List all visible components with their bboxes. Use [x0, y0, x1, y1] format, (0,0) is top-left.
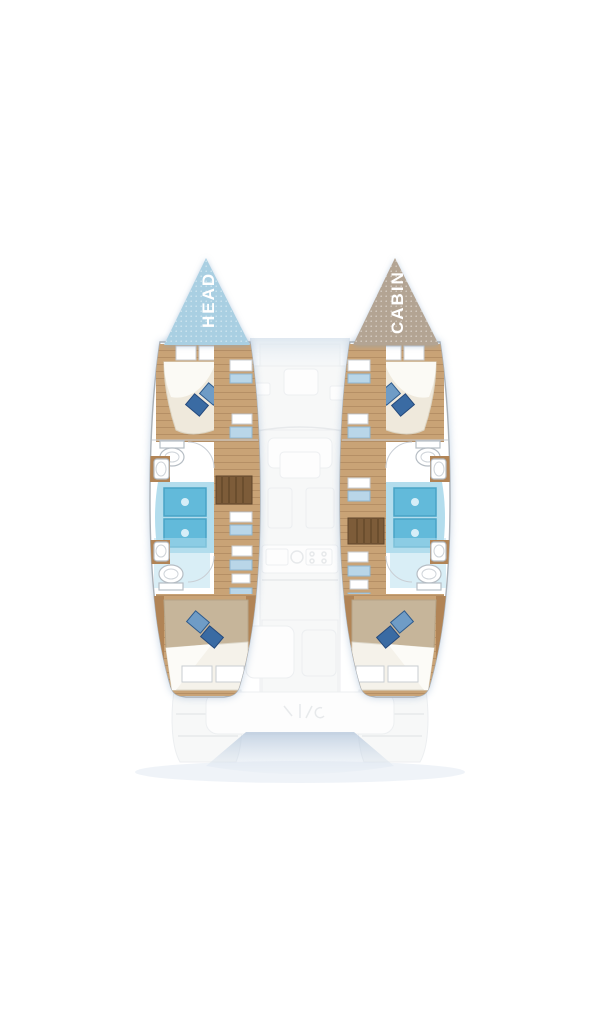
shower-drain — [181, 498, 189, 506]
cabinet-drawer — [348, 414, 368, 424]
head-label: HEAD — [199, 272, 218, 328]
bed-foot-drawer — [182, 666, 212, 682]
shower-drain — [411, 529, 419, 537]
shower-drain — [181, 529, 189, 537]
forward-cockpit-seat — [284, 369, 318, 395]
toilet-tank — [159, 583, 183, 590]
cabin-label: CABIN — [388, 270, 407, 334]
cabinet-drawer-blue — [230, 374, 252, 383]
cabinet-drawer — [348, 360, 370, 371]
toilet-bowl — [417, 565, 441, 583]
port-bow: HEAD — [164, 258, 250, 345]
stern-water-wash — [135, 761, 465, 783]
toilet-tank — [416, 441, 440, 448]
port-hull-interior — [150, 344, 260, 696]
boat-plan-svg: HEAD CABIN — [0, 0, 600, 1024]
toilet-tank — [160, 441, 184, 448]
cockpit-bench — [302, 630, 336, 676]
bed-foot-drawer — [388, 666, 418, 682]
port-companionway-steps — [216, 476, 252, 504]
cabinet-drawer-blue — [348, 566, 370, 576]
galley-sink — [266, 549, 288, 565]
cabinet-drawer-blue — [348, 427, 370, 438]
cabinet-drawer — [230, 512, 252, 522]
cabinet-drawer — [232, 546, 252, 556]
toilet-bowl — [159, 565, 183, 583]
cabinet-drawer — [348, 478, 370, 488]
starboard-companionway-steps — [348, 518, 384, 544]
starboard-bow: CABIN — [353, 258, 439, 345]
shower-drain — [411, 498, 419, 506]
cabinet-drawer — [230, 360, 252, 371]
cabinet-drawer — [350, 580, 368, 589]
cabinet-drawer-blue — [348, 374, 370, 383]
cabinet-drawer — [232, 574, 250, 583]
cockpit-table — [246, 626, 294, 678]
nav-station — [268, 488, 292, 528]
bed-foot-drawer — [356, 666, 384, 682]
cabinet-drawer — [348, 552, 368, 562]
catamaran-floorplan-page: HEAD CABIN — [0, 0, 600, 1024]
port-hull — [150, 342, 260, 697]
cabinet-drawer-blue — [230, 427, 252, 438]
saloon-cabinet — [306, 488, 334, 528]
cabinet-drawer-blue — [230, 560, 252, 570]
saloon-table — [280, 452, 320, 478]
cabinet-drawer-blue — [230, 525, 252, 535]
cabinet-drawer — [232, 414, 252, 424]
starboard-hull — [340, 342, 450, 697]
forward-headboard-panel — [404, 346, 424, 360]
forward-headboard-panel — [176, 346, 196, 360]
bed-foot-drawer — [216, 666, 244, 682]
toilet-tank — [417, 583, 441, 590]
cabinet-drawer-blue — [348, 491, 370, 501]
